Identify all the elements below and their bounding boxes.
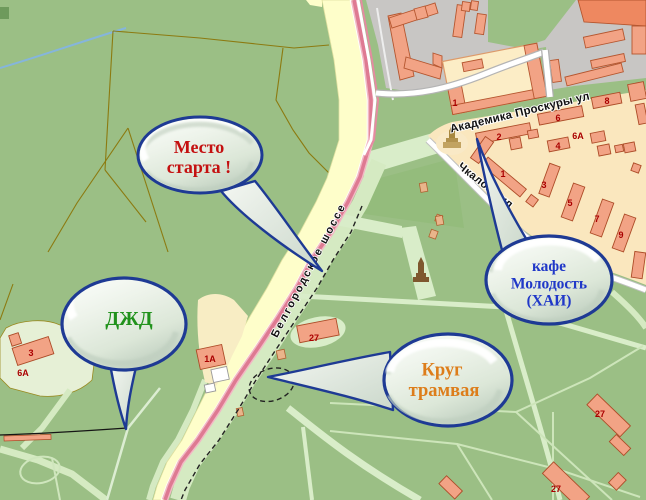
svg-text:1А: 1А xyxy=(204,354,216,364)
svg-text:1: 1 xyxy=(452,98,457,108)
svg-text:Молодость: Молодость xyxy=(511,276,587,293)
svg-text:27: 27 xyxy=(595,409,605,419)
svg-text:3: 3 xyxy=(28,348,33,358)
svg-text:8: 8 xyxy=(604,96,609,106)
svg-text:3: 3 xyxy=(541,180,546,190)
svg-text:9: 9 xyxy=(618,230,623,240)
svg-text:6А: 6А xyxy=(572,131,584,141)
svg-text:2: 2 xyxy=(496,132,501,142)
svg-text:кафе: кафе xyxy=(532,258,566,275)
svg-text:7: 7 xyxy=(594,214,599,224)
svg-text:трамвая: трамвая xyxy=(409,381,480,401)
svg-text:5: 5 xyxy=(567,198,572,208)
svg-text:27: 27 xyxy=(551,484,561,494)
svg-text:(ХАИ): (ХАИ) xyxy=(527,293,572,310)
svg-text:старта !: старта ! xyxy=(167,157,231,177)
svg-text:Круг: Круг xyxy=(421,361,462,381)
svg-text:1: 1 xyxy=(500,169,505,179)
svg-text:6: 6 xyxy=(555,113,560,123)
svg-text:6А: 6А xyxy=(17,368,29,378)
svg-text:ДЖД: ДЖД xyxy=(105,308,153,330)
svg-text:Место: Место xyxy=(174,137,225,157)
svg-text:4: 4 xyxy=(555,141,560,151)
svg-text:27: 27 xyxy=(309,333,319,343)
